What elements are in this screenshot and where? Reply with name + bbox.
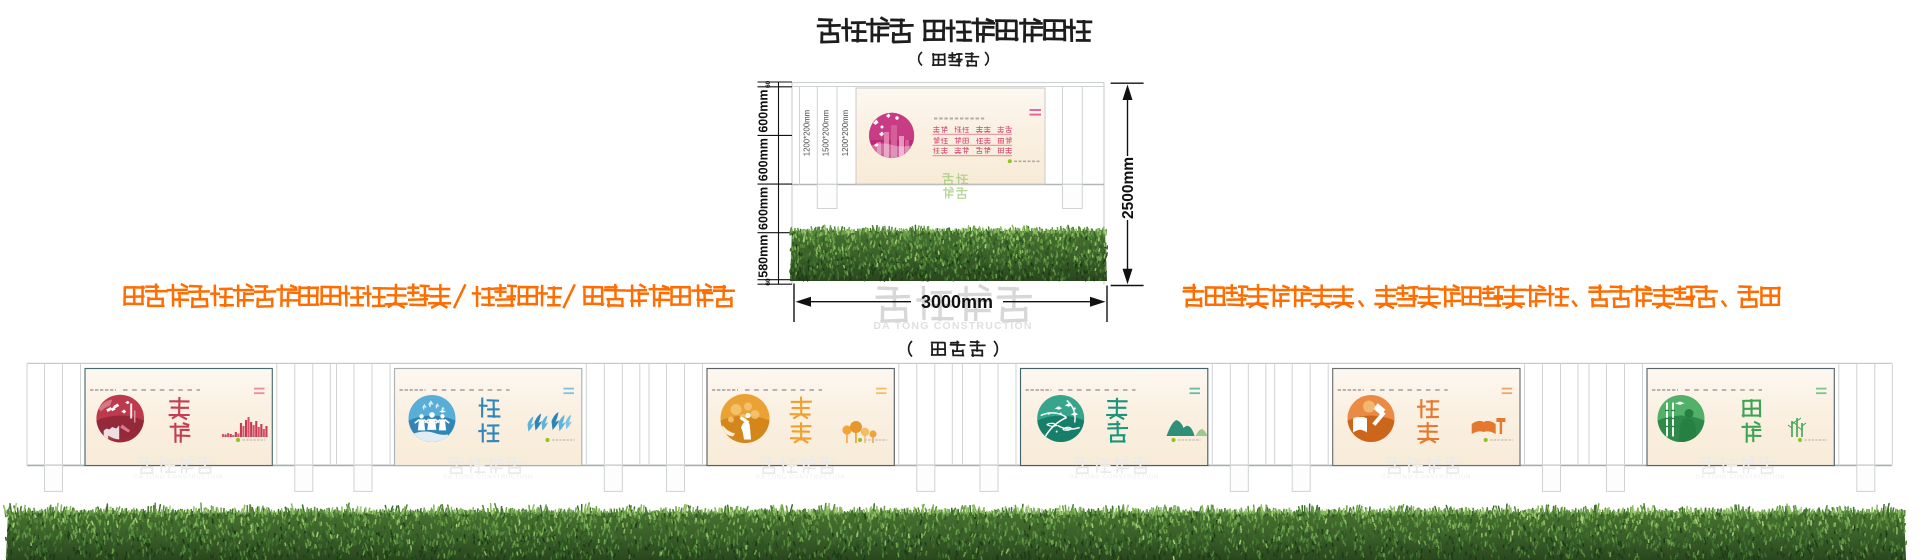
svg-text:600mm: 600mm (757, 90, 771, 133)
svg-text:DA TONG CONSTRUCTION: DA TONG CONSTRUCTION (1069, 475, 1159, 481)
svg-text:60: 60 (765, 278, 772, 286)
svg-text:600mm: 600mm (757, 187, 771, 230)
svg-text:DA TONG CONSTRUCTION: DA TONG CONSTRUCTION (134, 475, 224, 481)
svg-text:2500mm: 2500mm (1120, 157, 1137, 219)
svg-text:DA TONG CONSTRUCTION: DA TONG CONSTRUCTION (873, 320, 1032, 332)
svg-text:60: 60 (765, 80, 772, 88)
svg-text:DA TONG CONSTRUCTION: DA TONG CONSTRUCTION (756, 475, 846, 481)
svg-text:DA TONG CONSTRUCTION: DA TONG CONSTRUCTION (1382, 475, 1472, 481)
svg-text:1200*200mm: 1200*200mm (802, 110, 811, 156)
svg-text:1200*200mm: 1200*200mm (841, 110, 850, 156)
svg-text:1500*200mm: 1500*200mm (821, 110, 830, 156)
svg-text:580mm: 580mm (757, 235, 771, 278)
svg-text:3000mm: 3000mm (921, 292, 993, 312)
svg-text:DA TONG CONSTRUCTION: DA TONG CONSTRUCTION (1696, 475, 1786, 481)
svg-text:DA TONG CONSTRUCTION: DA TONG CONSTRUCTION (443, 475, 533, 481)
svg-text:600mm: 600mm (757, 138, 771, 181)
